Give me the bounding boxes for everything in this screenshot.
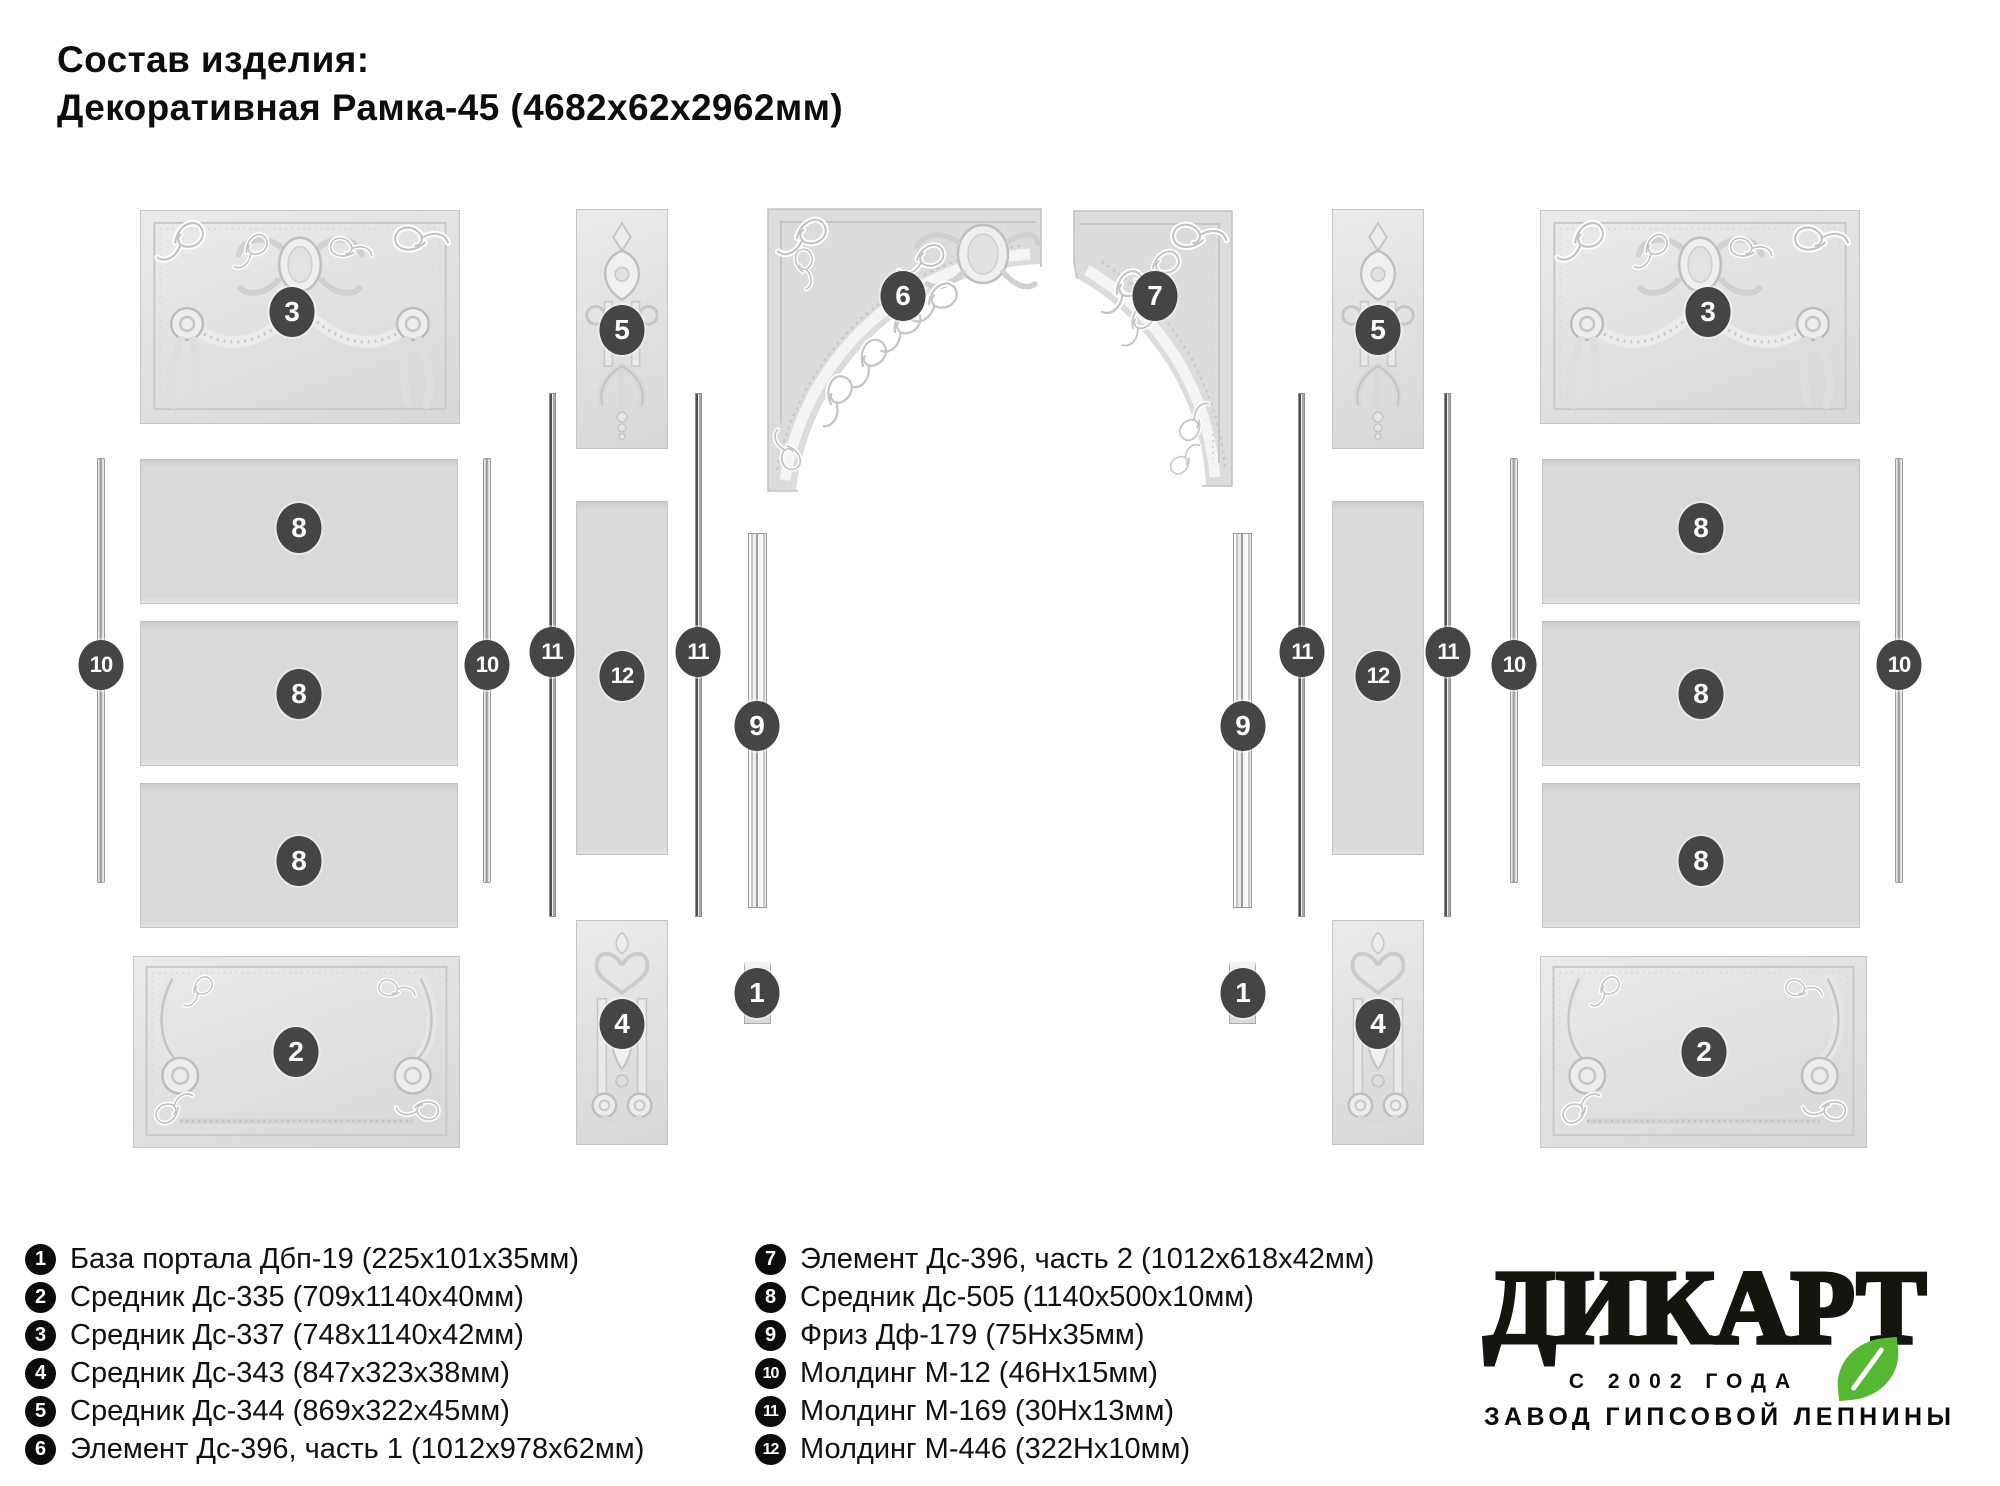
- legend-item-3: 3Средник Дс-337 (748х1140х42мм): [25, 1320, 644, 1351]
- legend-item-9: 9Фриз Дф-179 (75Нх35мм): [755, 1320, 1374, 1351]
- legend-text: Молдинг М-12 (46Нх15мм): [800, 1358, 1158, 1389]
- badge-5: 5: [600, 305, 645, 355]
- badge-2: 2: [274, 1027, 319, 1077]
- badge-11: 11: [530, 627, 575, 677]
- legend-item-5: 5Средник Дс-344 (869х322х45мм): [25, 1396, 644, 1427]
- badge-10: 10: [1877, 640, 1922, 690]
- legend-text: Средник Дс-505 (1140х500х10мм): [800, 1282, 1254, 1313]
- badge-3: 3: [1686, 287, 1731, 337]
- brand-logo: ДИКАРТ С 2002 ГОДА ЗАВОД ГИПСОВОЙ ЛЕПНИН…: [1484, 1256, 1914, 1432]
- leaf-vein: [1850, 1347, 1885, 1392]
- legend-text: Элемент Дс-396, часть 2 (1012х618х42мм): [800, 1244, 1374, 1275]
- legend-item-4: 4Средник Дс-343 (847х323х38мм): [25, 1358, 644, 1389]
- legend-item-11: 11Молдинг М-169 (30Нх13мм): [755, 1396, 1374, 1427]
- legend-item-12: 12Молдинг М-446 (322Нх10мм): [755, 1434, 1374, 1465]
- legend-number-badge: 8: [755, 1282, 786, 1313]
- legend-item-2: 2Средник Дс-335 (709х1140х40мм): [25, 1282, 644, 1313]
- legend-item-6: 6Элемент Дс-396, часть 1 (1012х978х62мм): [25, 1434, 644, 1465]
- legend-number-badge: 2: [25, 1282, 56, 1313]
- legend-text: Фриз Дф-179 (75Нх35мм): [800, 1320, 1144, 1351]
- badge-8: 8: [1679, 503, 1724, 553]
- legend-number-badge: 1: [25, 1244, 56, 1275]
- logo-wordmark: ДИКАРТ: [1484, 1256, 1914, 1360]
- legend-text: Молдинг М-169 (30Нх13мм): [800, 1396, 1174, 1427]
- element-7: [1073, 210, 1233, 487]
- legend-text: Элемент Дс-396, часть 1 (1012х978х62мм): [70, 1434, 644, 1465]
- badge-10: 10: [465, 640, 510, 690]
- legend-number-badge: 5: [25, 1396, 56, 1427]
- badge-8: 8: [277, 503, 322, 553]
- legend-item-1: 1База портала Дбп-19 (225х101х35мм): [25, 1244, 644, 1275]
- legend-number-badge: 12: [755, 1434, 786, 1465]
- legend-text: Средник Дс-337 (748х1140х42мм): [70, 1320, 524, 1351]
- legend-item-10: 10Молдинг М-12 (46Нх15мм): [755, 1358, 1374, 1389]
- legend-number-badge: 9: [755, 1320, 786, 1351]
- legend-column-2: 7Элемент Дс-396, часть 2 (1012х618х42мм)…: [755, 1244, 1374, 1472]
- badge-1: 1: [1221, 968, 1266, 1018]
- legend-item-7: 7Элемент Дс-396, часть 2 (1012х618х42мм): [755, 1244, 1374, 1275]
- legend-item-8: 8Средник Дс-505 (1140х500х10мм): [755, 1282, 1374, 1313]
- badge-2: 2: [1682, 1027, 1727, 1077]
- badge-10: 10: [79, 640, 124, 690]
- badge-4: 4: [1356, 999, 1401, 1049]
- legend-number-badge: 6: [25, 1434, 56, 1465]
- badge-11: 11: [1426, 627, 1471, 677]
- legend-number-badge: 11: [755, 1396, 786, 1427]
- badge-8: 8: [277, 836, 322, 886]
- badge-8: 8: [1679, 836, 1724, 886]
- legend-text: База портала Дбп-19 (225х101х35мм): [70, 1244, 579, 1275]
- legend-number-badge: 3: [25, 1320, 56, 1351]
- badge-4: 4: [600, 999, 645, 1049]
- badge-5: 5: [1356, 305, 1401, 355]
- badge-6: 6: [881, 271, 926, 321]
- badge-11: 11: [676, 627, 721, 677]
- legend-number-badge: 4: [25, 1358, 56, 1389]
- badge-9: 9: [1221, 701, 1266, 751]
- component-diagram: 3388888822101010101111111155121244679911: [0, 0, 2000, 1230]
- legend-text: Средник Дс-335 (709х1140х40мм): [70, 1282, 524, 1313]
- badge-8: 8: [277, 669, 322, 719]
- badge-8: 8: [1679, 669, 1724, 719]
- badge-1: 1: [735, 968, 780, 1018]
- badge-9: 9: [735, 701, 780, 751]
- badge-12: 12: [600, 651, 645, 701]
- element-6: [767, 208, 1042, 492]
- logo-tagline-factory: ЗАВОД ГИПСОВОЙ ЛЕПНИНЫ: [1484, 1403, 1914, 1432]
- badge-12: 12: [1356, 651, 1401, 701]
- legend-text: Средник Дс-343 (847х323х38мм): [70, 1358, 510, 1389]
- badge-7: 7: [1133, 271, 1178, 321]
- badge-3: 3: [270, 287, 315, 337]
- badge-11: 11: [1280, 627, 1325, 677]
- legend-number-badge: 7: [755, 1244, 786, 1275]
- legend-number-badge: 10: [755, 1358, 786, 1389]
- legend-column-1: 1База портала Дбп-19 (225х101х35мм)2Сред…: [25, 1244, 644, 1472]
- page: { "title": { "line1": "Состав изделия:",…: [0, 0, 2000, 1486]
- legend-text: Средник Дс-344 (869х322х45мм): [70, 1396, 510, 1427]
- legend-text: Молдинг М-446 (322Нх10мм): [800, 1434, 1190, 1465]
- badge-10: 10: [1492, 640, 1537, 690]
